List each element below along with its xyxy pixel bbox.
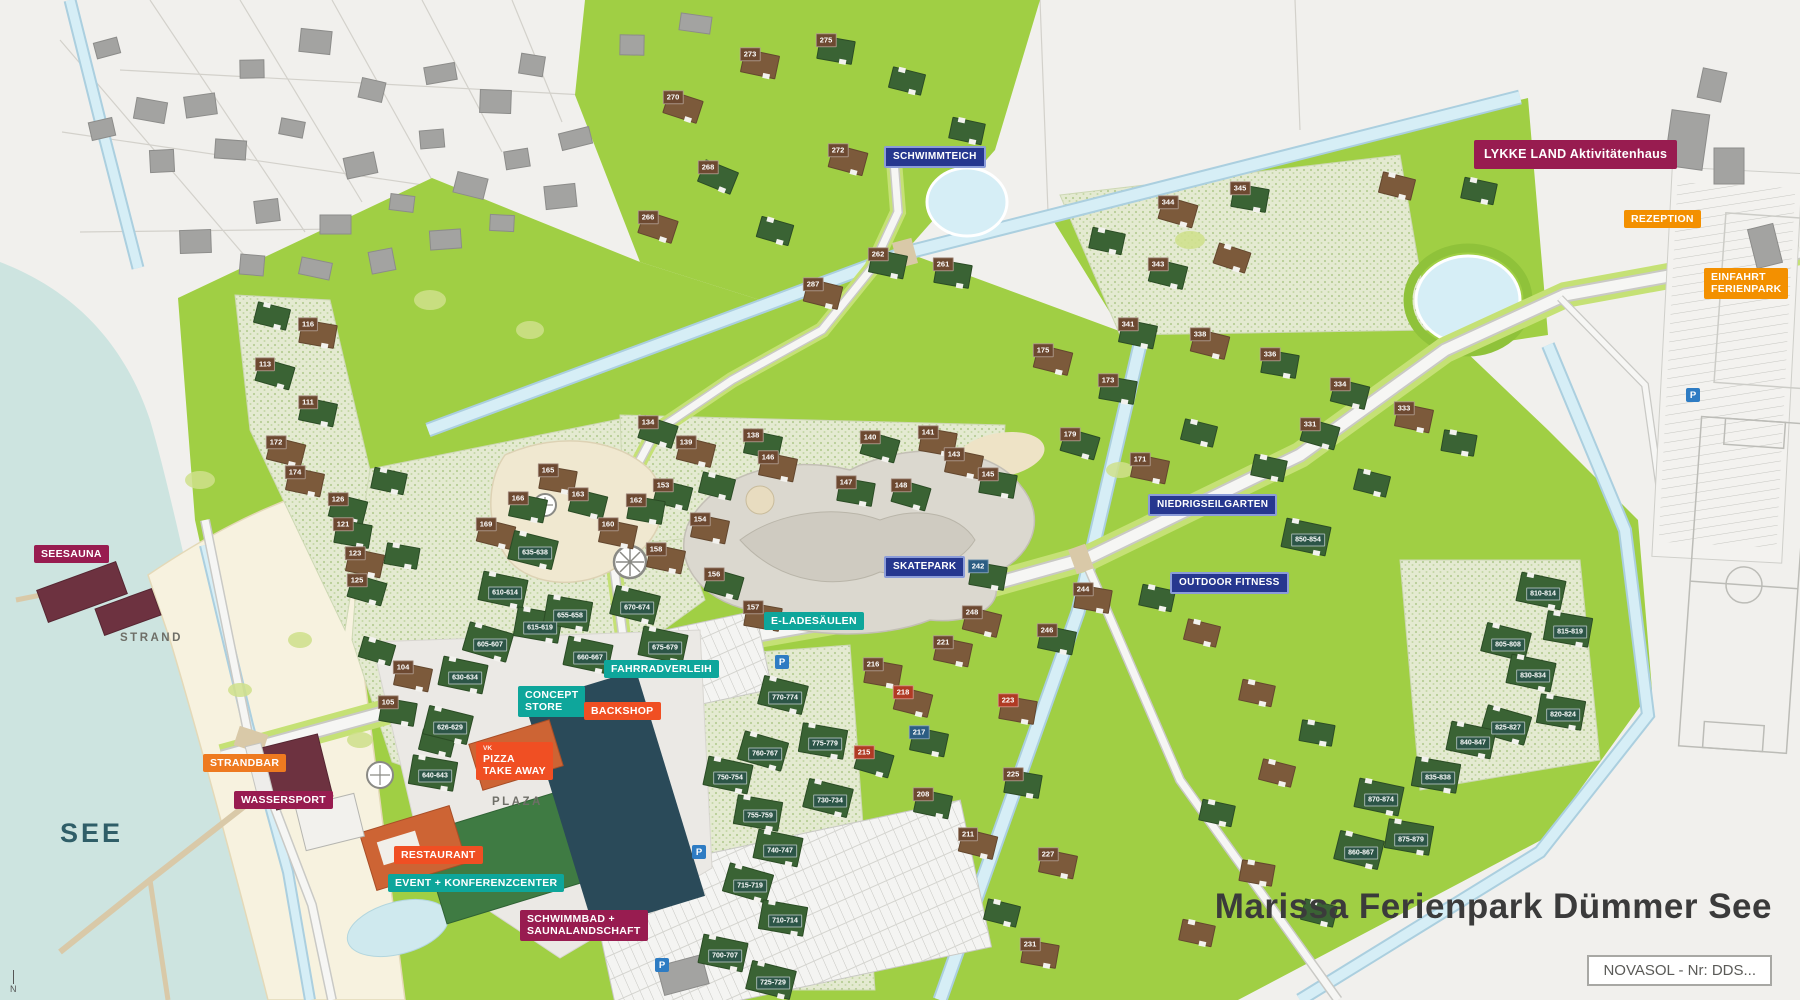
house-number-badge: 835-838 [1421, 772, 1455, 785]
poi-badge-rezeption: REZEPTION [1624, 210, 1701, 228]
parking-icon: P [692, 845, 706, 859]
house-number-badge: 344 [1158, 195, 1179, 209]
house-number-badge: 175 [1033, 343, 1054, 357]
house-number-badge: 172 [266, 435, 287, 449]
house-number-badge: 810-814 [1526, 588, 1560, 601]
house-number-badge: 287 [803, 277, 824, 291]
house-number-badge: 755-759 [743, 810, 777, 823]
poi-badge-pizza: VKPIZZATAKE AWAY [476, 742, 553, 780]
house-number-badge: 760-767 [748, 748, 782, 761]
poi-badge-label: WASSERSPORT [241, 794, 326, 806]
poi-badge-e-lades-ulen: E-LADESÄULEN [764, 612, 864, 630]
poi-badge-label: FAHRRADVERLEIH [611, 663, 712, 675]
house-number-badge: 333 [1394, 401, 1415, 415]
house-number-badge: 141 [918, 425, 939, 439]
house-number-badge: 336 [1260, 347, 1281, 361]
poi-badge-einfahrt: EINFAHRTFERIENPARK [1704, 268, 1788, 299]
house-number-badge: 860-867 [1344, 847, 1378, 860]
poi-badge-label: STORE [525, 701, 578, 713]
house-number-badge: 221 [933, 635, 954, 649]
poi-badge-wassersport: WASSERSPORT [234, 791, 333, 809]
map-title: Marissa Ferienpark Dümmer See [1215, 887, 1772, 927]
house-number-badge: 246 [1037, 623, 1058, 637]
house-number-badge: 740-747 [763, 845, 797, 858]
house-number-badge: 270 [663, 90, 684, 104]
house-number-badge: 715-719 [733, 880, 767, 893]
house-number-badge: 143 [944, 447, 965, 461]
house-number-badge: 775-779 [808, 738, 842, 751]
house-number-badge: 113 [255, 357, 275, 371]
house-number-badge: 655-658 [553, 610, 587, 623]
house-number-badge: 227 [1038, 847, 1059, 861]
house-number-badge: 660-667 [573, 652, 607, 665]
poi-badge-label: SKATEPARK [893, 561, 956, 573]
plaza-label: PLAZA [492, 796, 543, 808]
poi-badge-label: PIZZA [483, 753, 546, 765]
house-number-badge: 272 [828, 143, 849, 157]
house-number-badge: 139 [676, 435, 697, 449]
house-number-badge: 750-754 [713, 772, 747, 785]
house-number-badge: 165 [538, 463, 559, 477]
house-number-badge: 123 [345, 546, 366, 560]
poi-badge-event-konferenzcenter: EVENT + KONFERENZCENTER [388, 874, 564, 892]
house-number-badge: 273 [740, 47, 761, 61]
poi-badge-label: FERIENPARK [1711, 283, 1781, 295]
lake-label: SEE [60, 818, 123, 849]
house-number-badge: 158 [646, 542, 667, 556]
house-number-badge: 174 [285, 465, 306, 479]
house-number-badge: 125 [347, 573, 368, 587]
house-number-badge: 156 [704, 567, 725, 581]
poi-badge-label: BACKSHOP [591, 705, 654, 717]
house-number-badge: 825-827 [1491, 722, 1525, 735]
house-number-badge: 116 [298, 317, 318, 331]
poi-badge-skatepark: SKATEPARK [884, 556, 965, 578]
house-number-badge: 163 [568, 487, 589, 501]
poi-badge-logo: VK [483, 745, 546, 753]
house-number-badge: 710-714 [768, 915, 802, 928]
poi-badge-niedrigseilgarten: NIEDRIGSEILGARTEN [1148, 494, 1277, 516]
house-number-badge: 343 [1148, 257, 1169, 271]
house-number-badge: 266 [638, 210, 659, 224]
poi-badge-strandbar: STRANDBAR [203, 754, 286, 772]
house-number-badge: 331 [1300, 417, 1321, 431]
house-number-badge: 171 [1130, 452, 1151, 466]
poi-badge-label: TAKE AWAY [483, 765, 546, 777]
north-arrow-icon [13, 970, 14, 984]
house-number-badge: 820-824 [1546, 709, 1580, 722]
house-number-badge: 870-874 [1364, 794, 1398, 807]
house-number-badge: 153 [653, 478, 674, 492]
poi-badge-label: STRANDBAR [210, 757, 279, 769]
labels-layer: SEE STRAND PLAZA SCHWIMMTEICHLYKKE LAND … [0, 0, 1800, 1000]
house-number-badge: 217 [909, 725, 930, 739]
poi-badge-label: SAUNALANDSCHAFT [527, 925, 641, 937]
house-number-badge: 104 [393, 660, 414, 674]
house-number-badge: 670-674 [620, 602, 654, 615]
house-number-badge: 208 [913, 787, 934, 801]
poi-badge-label: SCHWIMMBAD + [527, 913, 641, 925]
house-number-badge: 211 [958, 827, 978, 841]
house-number-badge: 179 [1060, 427, 1081, 441]
poi-badge-label: CONCEPT [525, 689, 578, 701]
poi-badge-lykke-land-aktivit-tenhaus: LYKKE LAND Aktivitätenhaus [1474, 140, 1677, 169]
house-number-badge: 248 [962, 605, 983, 619]
north-indicator: N [10, 970, 17, 994]
house-number-badge: 148 [891, 478, 912, 492]
house-number-badge: 225 [1003, 767, 1024, 781]
house-number-badge: 145 [978, 467, 999, 481]
house-number-badge: 242 [968, 559, 989, 573]
house-number-badge: 134 [638, 415, 659, 429]
poi-badge-seesauna: SEESAUNA [34, 545, 109, 563]
house-number-badge: 815-819 [1553, 626, 1587, 639]
house-number-badge: 275 [816, 33, 837, 47]
house-number-badge: 160 [598, 517, 619, 531]
house-number-badge: 223 [998, 693, 1019, 707]
house-number-badge: 850-854 [1291, 534, 1325, 547]
house-number-badge: 630-634 [448, 672, 482, 685]
house-number-badge: 640-643 [418, 770, 452, 783]
house-number-badge: 105 [378, 695, 399, 709]
poi-badge-label: RESTAURANT [401, 849, 476, 861]
house-number-badge: 261 [933, 257, 954, 271]
house-number-badge: 146 [758, 450, 779, 464]
house-number-badge: 162 [626, 493, 647, 507]
house-number-badge: 345 [1230, 181, 1251, 195]
house-number-badge: 605-607 [473, 639, 507, 652]
poi-badge-label: SEESAUNA [41, 548, 102, 560]
house-number-badge: 675-679 [648, 642, 682, 655]
house-number-badge: 216 [863, 657, 884, 671]
house-number-badge: 770-774 [768, 692, 802, 705]
beach-label: STRAND [120, 632, 183, 644]
poi-badge-schwimmbad: SCHWIMMBAD +SAUNALANDSCHAFT [520, 910, 648, 941]
poi-badge-label: REZEPTION [1631, 213, 1694, 225]
house-number-badge: 154 [690, 512, 711, 526]
poi-badge-fahrradverleih: FAHRRADVERLEIH [604, 660, 719, 678]
poi-badge-label: E-LADESÄULEN [771, 615, 857, 627]
house-number-badge: 111 [298, 395, 318, 409]
house-number-badge: 244 [1073, 582, 1094, 596]
house-number-badge: 725-729 [756, 977, 790, 990]
house-number-badge: 126 [328, 492, 349, 506]
parking-icon: P [655, 958, 669, 972]
poi-badge-label: EVENT + KONFERENZCENTER [395, 877, 557, 889]
house-number-badge: 610-614 [488, 587, 522, 600]
house-number-badge: 121 [333, 517, 354, 531]
poi-badge-label: NIEDRIGSEILGARTEN [1157, 499, 1268, 511]
house-number-badge: 138 [743, 428, 764, 442]
house-number-badge: 334 [1330, 377, 1351, 391]
house-number-badge: 140 [860, 430, 881, 444]
house-number-badge: 805-808 [1491, 639, 1525, 652]
poi-badge-label: EINFAHRT [1711, 271, 1781, 283]
house-number-badge: 231 [1020, 937, 1041, 951]
listing-reference-box[interactable]: NOVASOL - Nr: DDS... [1587, 955, 1772, 986]
house-number-badge: 626-629 [433, 722, 467, 735]
house-number-badge: 262 [868, 247, 889, 261]
poi-badge-outdoor-fitness: OUTDOOR FITNESS [1170, 572, 1289, 594]
poi-badge-label: OUTDOOR FITNESS [1179, 577, 1280, 589]
house-number-badge: 875-879 [1394, 834, 1428, 847]
house-number-badge: 157 [743, 600, 764, 614]
house-number-badge: 830-834 [1516, 670, 1550, 683]
house-number-badge: 268 [698, 160, 719, 174]
house-number-badge: 615-619 [523, 622, 557, 635]
house-number-badge: 840-847 [1456, 737, 1490, 750]
poi-badge-label: LYKKE LAND Aktivitätenhaus [1484, 147, 1667, 162]
parking-icon: P [1686, 388, 1700, 402]
house-number-badge: 730-734 [813, 795, 847, 808]
poi-badge-backshop: BACKSHOP [584, 702, 661, 720]
house-number-badge: 173 [1098, 373, 1119, 387]
poi-badge-label: SCHWIMMTEICH [893, 151, 977, 163]
house-number-badge: 215 [854, 745, 875, 759]
park-site-map[interactable]: 2702732752722682662622872613443453433413… [0, 0, 1800, 1000]
house-number-badge: 166 [508, 491, 529, 505]
house-number-badge: 338 [1190, 327, 1211, 341]
house-number-badge: 700-707 [708, 950, 742, 963]
house-number-badge: 635-638 [518, 547, 552, 560]
poi-badge-restaurant: RESTAURANT [394, 846, 483, 864]
house-number-badge: 341 [1118, 317, 1139, 331]
parking-icon: P [775, 655, 789, 669]
poi-badge-concept: CONCEPTSTORE [518, 686, 585, 717]
house-number-badge: 218 [893, 685, 914, 699]
poi-badge-schwimmteich: SCHWIMMTEICH [884, 146, 986, 168]
house-number-badge: 169 [476, 517, 497, 531]
house-number-badge: 147 [836, 475, 857, 489]
